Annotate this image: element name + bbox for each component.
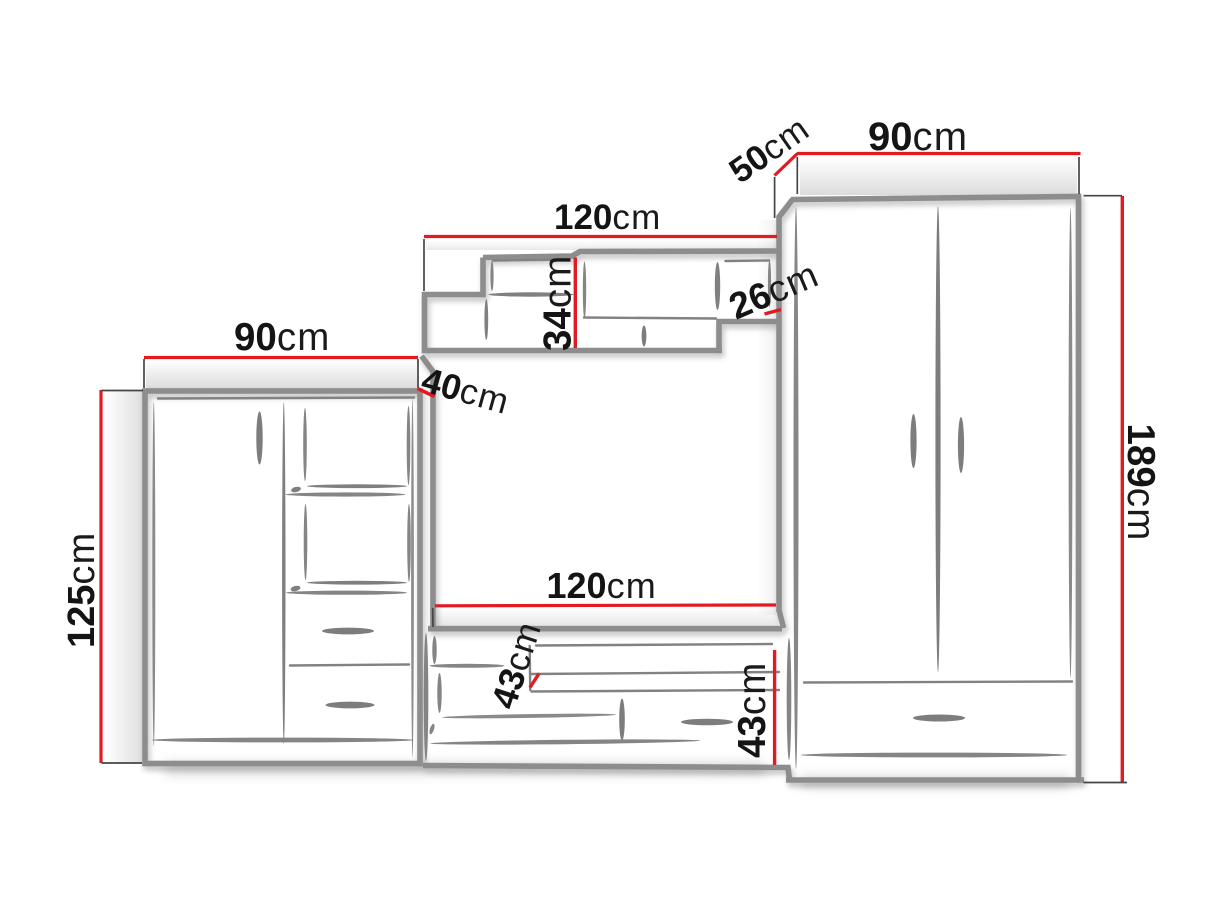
- svg-text:120cm: 120cm: [554, 198, 661, 237]
- svg-text:43cm: 43cm: [731, 661, 774, 758]
- svg-text:90cm: 90cm: [868, 115, 968, 159]
- svg-text:120cm: 120cm: [547, 565, 657, 606]
- svg-text:189cm: 189cm: [1119, 424, 1162, 542]
- svg-text:34cm: 34cm: [537, 254, 580, 351]
- svg-text:90cm: 90cm: [234, 316, 331, 359]
- svg-text:125cm: 125cm: [61, 532, 103, 648]
